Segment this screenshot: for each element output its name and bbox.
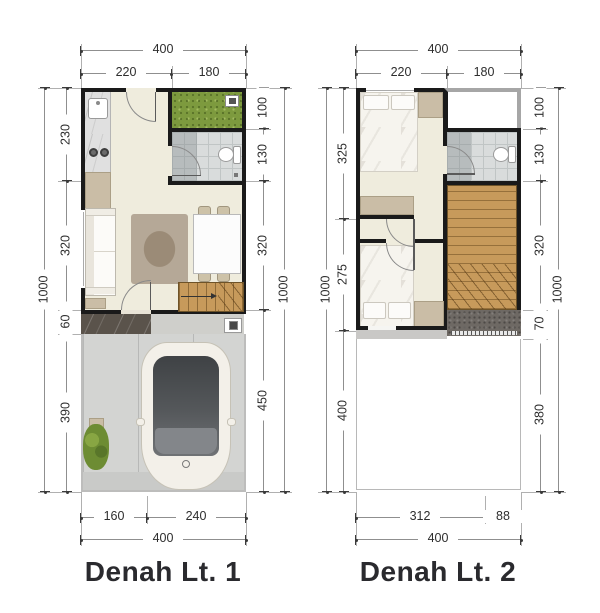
dim-label: 390 <box>60 393 73 433</box>
wall <box>360 239 386 243</box>
dim-label: 180 <box>189 66 229 79</box>
dim-tick <box>355 50 358 53</box>
wall <box>172 181 242 185</box>
dim-tick <box>66 491 69 494</box>
dim-label: 1000 <box>38 270 51 310</box>
dim-tick <box>263 180 266 183</box>
dresser-icon <box>360 196 414 215</box>
toilet-icon <box>218 147 234 162</box>
void-area <box>444 88 521 128</box>
dim-tick <box>326 87 329 90</box>
pillow-icon <box>391 95 415 110</box>
dim-tick <box>66 87 69 90</box>
dim-tick <box>245 517 248 520</box>
dim-tick <box>245 539 248 542</box>
dim-label: 1000 <box>278 270 291 310</box>
dim-label: 230 <box>60 115 73 155</box>
balcony-railing <box>451 331 517 335</box>
dim-tick <box>245 50 248 53</box>
dim-tick <box>326 491 329 494</box>
dim-label: 400 <box>418 43 458 56</box>
dim-tick <box>558 87 561 90</box>
plan-title-lt2: Denah Lt. 2 <box>328 556 548 588</box>
toilet-tank <box>508 146 516 163</box>
door-leaf <box>150 282 152 310</box>
dim-label: 1000 <box>552 270 565 310</box>
utility-meter-core <box>229 321 238 330</box>
entry-step <box>81 314 151 334</box>
water-heater-core <box>229 98 236 104</box>
dim-label: 180 <box>464 66 504 79</box>
dim-label: 400 <box>337 391 350 431</box>
dim-tick <box>66 180 69 183</box>
pillow-icon <box>363 302 386 319</box>
dim-label: 100 <box>257 88 270 128</box>
dim-label: 400 <box>143 532 183 545</box>
dim-label: 60 <box>60 302 73 342</box>
building-lt1 <box>81 88 246 492</box>
dim-tick <box>355 73 358 76</box>
dim-label: 88 <box>483 510 523 523</box>
dim-tick <box>263 309 266 312</box>
dim-tick <box>520 73 523 76</box>
dim-label: 320 <box>257 226 270 266</box>
dim-label: 220 <box>106 66 146 79</box>
dim-tick <box>540 180 543 183</box>
door-leaf <box>155 92 157 121</box>
door-leaf <box>413 219 415 246</box>
dim-label: 220 <box>381 66 421 79</box>
dim-label: 1000 <box>320 270 333 310</box>
dim-label: 325 <box>337 134 350 174</box>
car-mirror-icon <box>136 418 145 426</box>
dim-label: 380 <box>534 395 547 435</box>
dining-table-icon <box>193 214 241 274</box>
toilet-icon <box>493 147 509 162</box>
sofa-armrest <box>86 287 115 294</box>
stairs-arrow-icon <box>211 293 217 299</box>
building-lt2 <box>356 88 521 492</box>
dim-tick <box>520 50 523 53</box>
sofa-back <box>86 209 94 295</box>
dim-label: 312 <box>400 510 440 523</box>
sink-faucet-icon <box>96 101 100 105</box>
dim-tick <box>80 539 83 542</box>
dim-tick <box>263 491 266 494</box>
plant-icon <box>83 424 109 470</box>
dim-tick <box>245 73 248 76</box>
lower-roof-outline <box>356 339 521 490</box>
dim-tick <box>146 517 149 520</box>
wardrobe-icon <box>414 301 444 328</box>
dim-label: 400 <box>143 43 183 56</box>
floor-drain-icon <box>234 173 238 177</box>
dim-label: 130 <box>534 135 547 175</box>
sofa-armrest <box>86 209 115 216</box>
dim-tick <box>355 517 358 520</box>
car-logo-icon <box>182 460 190 468</box>
dim-tick <box>284 491 287 494</box>
dim-tick <box>355 539 358 542</box>
stairs-direction-line <box>181 296 211 297</box>
dim-label: 320 <box>534 226 547 266</box>
dim-label: 400 <box>418 532 458 545</box>
door-leaf <box>172 175 201 177</box>
car-icon <box>141 340 231 492</box>
dim-tick <box>343 218 346 221</box>
stairs-winder <box>218 283 243 311</box>
dim-label: 240 <box>176 510 216 523</box>
window-line <box>366 90 414 91</box>
car-windshield <box>155 428 217 454</box>
floor-plan-canvas: 400 220 180 1000 230 320 60 390 100 130 … <box>0 0 600 613</box>
door-leaf <box>413 243 415 270</box>
stove-burner-icon <box>100 148 109 157</box>
car-mirror-icon <box>227 418 236 426</box>
dim-label: 70 <box>534 304 547 344</box>
dim-tick <box>80 73 83 76</box>
dim-tick <box>44 491 47 494</box>
wall <box>414 239 447 243</box>
dim-label: 100 <box>534 88 547 128</box>
dim-label: 320 <box>60 226 73 266</box>
dim-tick <box>170 73 173 76</box>
window-line <box>83 212 84 286</box>
pillow-icon <box>363 95 389 110</box>
door-leaf <box>447 173 475 175</box>
dim-label: 130 <box>257 135 270 175</box>
stove-burner-icon <box>89 148 98 157</box>
plan-title-lt1: Denah Lt. 1 <box>53 556 273 588</box>
console-table <box>85 298 106 309</box>
dim-tick <box>343 329 346 332</box>
dim-label: 450 <box>257 381 270 421</box>
dim-tick <box>446 73 449 76</box>
dim-tick <box>540 491 543 494</box>
sofa-cushion-line <box>94 251 115 252</box>
dim-tick <box>343 491 346 494</box>
dim-tick <box>80 517 83 520</box>
dim-label: 160 <box>94 510 134 523</box>
dim-tick <box>558 491 561 494</box>
dim-tick <box>284 87 287 90</box>
pillow-icon <box>388 302 411 319</box>
dim-tick <box>520 539 523 542</box>
dim-tick <box>44 87 47 90</box>
dim-tick <box>80 50 83 53</box>
dim-label: 275 <box>337 255 350 295</box>
toilet-tank <box>233 146 241 164</box>
dim-tick <box>343 87 346 90</box>
wall <box>447 128 521 132</box>
roof-edge-strip <box>356 330 447 339</box>
stairs-winder <box>448 264 516 309</box>
wardrobe-icon <box>418 92 443 118</box>
rug-icon <box>131 214 188 284</box>
